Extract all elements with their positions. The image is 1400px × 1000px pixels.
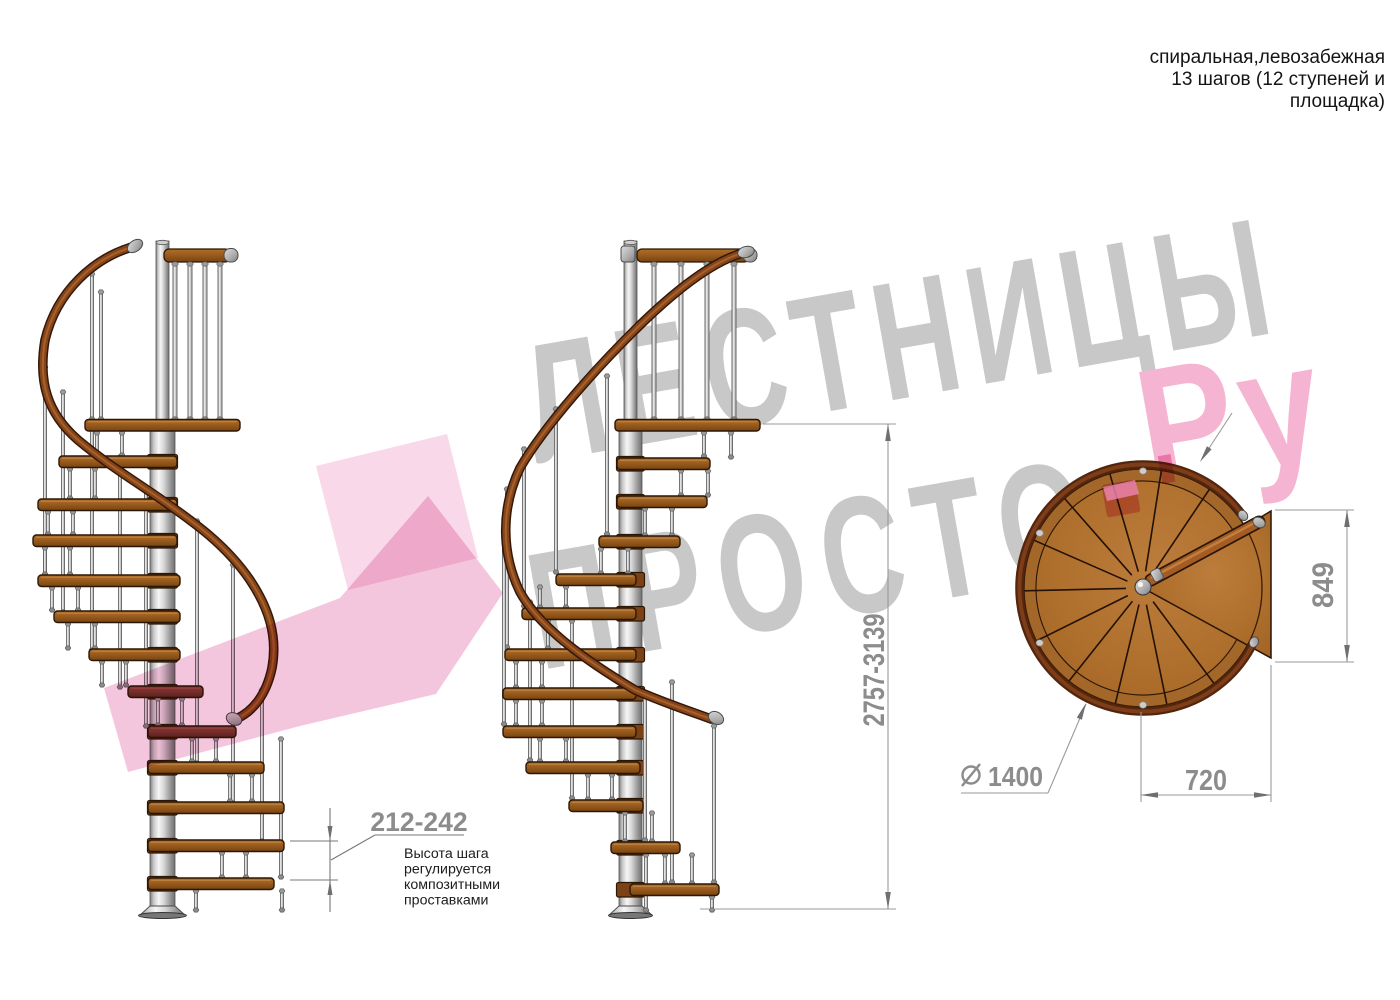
svg-text:720: 720 (1185, 765, 1227, 797)
svg-text:849: 849 (1307, 562, 1340, 608)
svg-text:композитными: композитными (404, 877, 500, 893)
svg-text:2757-3139: 2757-3139 (858, 614, 891, 727)
svg-text:212-242: 212-242 (370, 807, 467, 837)
svg-text:проставками: проставками (404, 893, 488, 909)
svg-text:13 шагов (12 ступеней и: 13 шагов (12 ступеней и (1171, 69, 1385, 90)
svg-text:1400: 1400 (988, 761, 1043, 792)
svg-text:регулируется: регулируется (404, 862, 491, 878)
svg-text:спиральная,левозабежная: спиральная,левозабежная (1150, 47, 1385, 68)
svg-text:площадка): площадка) (1290, 91, 1385, 112)
svg-text:Высота шага: Высота шага (404, 846, 489, 862)
